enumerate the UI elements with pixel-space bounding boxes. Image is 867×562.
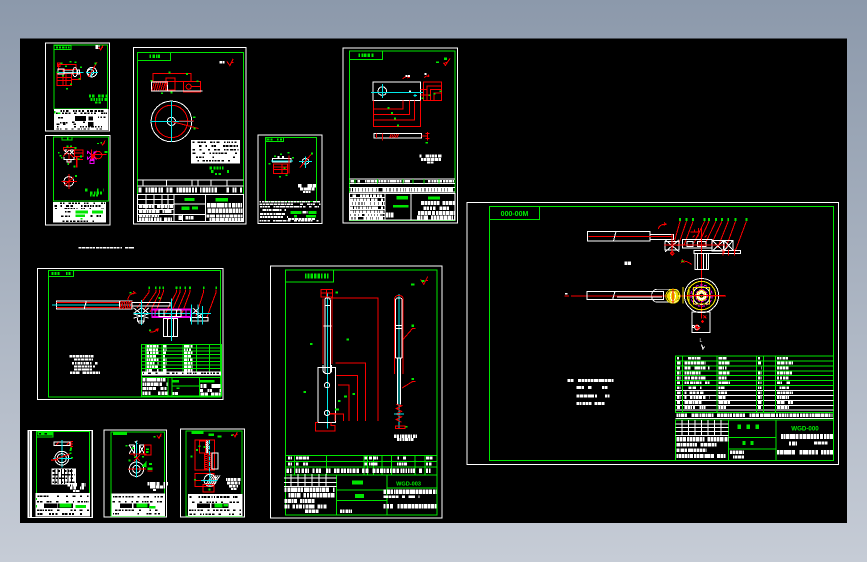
svg-text:L: L bbox=[700, 338, 703, 344]
svg-text:WGD-003: WGD-003 bbox=[396, 482, 421, 488]
svg-text:000-00M: 000-00M bbox=[501, 211, 529, 218]
svg-text:WGD-000: WGD-000 bbox=[791, 426, 819, 433]
